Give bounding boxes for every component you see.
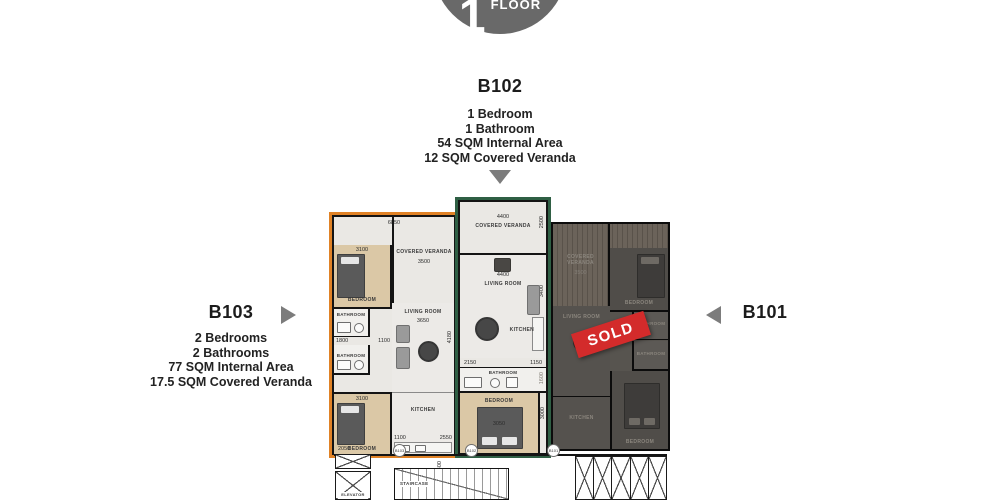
b103-kitchen-dims: 1100 2550 [394, 435, 452, 441]
room-label: BEDROOM [612, 439, 668, 445]
shower-icon [506, 377, 518, 388]
floor-badge-content: 1 FLOOR [433, 0, 567, 34]
page-canvas: 1 FLOOR B102 1 Bedroom 1 Bathroom 54 SQM… [0, 0, 1000, 500]
room-label: BEDROOM [460, 398, 538, 404]
b103-detail-line: 17.5 SQM Covered Veranda [131, 375, 331, 390]
b103-bathroom-2: BATHROOM [334, 345, 370, 375]
dim-label: 4400 [460, 214, 546, 220]
b101-bedroom-1: BEDROOM [610, 248, 668, 312]
bed-icon [477, 407, 523, 449]
pergola-hatched-area [575, 456, 667, 500]
hatch-cell [612, 457, 630, 499]
b103-detail-line: 2 Bathrooms [131, 346, 331, 361]
dim-label: 4180 [447, 331, 453, 343]
bed-icon [337, 403, 365, 445]
bathtub-icon [337, 360, 351, 370]
pillow-icon [502, 437, 517, 445]
room-label: KITCHEN [392, 407, 454, 413]
b103-detail-line: 2 Bedrooms [131, 331, 331, 346]
b102-bathroom: BATHROOM 1600 [460, 367, 546, 393]
b102-title: B102 [380, 76, 620, 97]
dim-label: 3100 [334, 247, 390, 253]
hatch-cell [594, 457, 612, 499]
floor-plan: 6850 COVERED VERANDA 3500 2150 3100 BEDR… [330, 196, 671, 500]
room-label: BATHROOM [460, 370, 546, 376]
pillow-icon [341, 406, 359, 413]
toilet-icon [354, 360, 364, 370]
b102-callout: B102 1 Bedroom 1 Bathroom 54 SQM Interna… [380, 76, 620, 165]
dim-label: 2550 [440, 435, 452, 441]
dim-label: 1100 [394, 435, 406, 441]
dim-label: 4400 [460, 272, 546, 278]
room-label: LIVING ROOM [392, 309, 454, 315]
room-label: BATHROOM [334, 312, 368, 318]
sofa-icon [396, 347, 410, 369]
b101-bedroom-2: BEDROOM [610, 371, 668, 449]
pillow-icon [644, 418, 655, 425]
sink-icon [490, 378, 500, 388]
b102-detail-line: 54 SQM Internal Area [380, 136, 620, 151]
dim-label: 1800 [336, 338, 348, 344]
door-tag-b101: B101 [547, 444, 560, 457]
plan-unit-b103[interactable]: 6850 COVERED VERANDA 3500 2150 3100 BEDR… [332, 215, 456, 455]
room-label: STAIRCASE [398, 481, 430, 487]
b103-detail-line: 77 SQM Internal Area [131, 360, 331, 375]
dim-label: 3500 [553, 270, 608, 276]
dim-label: 3050 [460, 421, 538, 427]
kitchen-counter-icon [532, 317, 544, 351]
room-label: COVERED VERANDA [553, 254, 608, 266]
bathtub-icon [464, 377, 482, 388]
b103-bathroom-1: BATHROOM [334, 309, 370, 337]
room-label: BEDROOM [610, 300, 668, 306]
dim-label: 2150 [464, 360, 476, 366]
dim-label: 2500 [539, 216, 545, 228]
room-label: BEDROOM [334, 297, 390, 303]
armchair-icon [396, 325, 410, 343]
b103-title: B103 [131, 302, 331, 323]
door-tag-b103: B103 [393, 444, 406, 457]
pillow-icon [482, 437, 497, 445]
door-tag-label: B101 [549, 448, 558, 453]
door-tag-b102: B102 [465, 444, 478, 457]
dim-label: 3650 [392, 318, 454, 324]
b102-detail-line: 1 Bathroom [380, 122, 620, 137]
b102-details: 1 Bedroom 1 Bathroom 54 SQM Internal Are… [380, 107, 620, 165]
armchair-icon [494, 258, 511, 272]
room-label: COVERED VERANDA [460, 223, 546, 229]
plan-unit-b101[interactable]: COVERED VERANDA 3500 BEDROOM LIVING ROOM… [551, 222, 670, 451]
b101-covered-veranda: COVERED VERANDA 3500 [553, 224, 610, 306]
b102-detail-line: 1 Bedroom [380, 107, 620, 122]
floor-badge: 1 FLOOR [433, 0, 567, 34]
b101-pointer-arrow-icon[interactable] [706, 306, 721, 324]
bed-icon [337, 254, 365, 298]
dim-label: 3100 [334, 396, 390, 402]
pillow-icon [641, 257, 659, 264]
b103-pointer-arrow-icon[interactable] [281, 306, 296, 324]
floor-label: FLOOR [491, 0, 542, 12]
room-label: BATHROOM [334, 353, 368, 359]
b103-bedroom-1: 3100 BEDROOM [334, 245, 392, 309]
dining-table-icon [418, 341, 439, 362]
hatch-cell [631, 457, 649, 499]
b102-covered-veranda: 4400 COVERED VERANDA 2500 [460, 202, 546, 255]
b102-detail-line: 12 SQM Covered Veranda [380, 151, 620, 166]
hatch-cell [649, 457, 666, 499]
hatch-cell [576, 457, 594, 499]
dining-table-icon [475, 317, 499, 341]
bed-icon [624, 383, 660, 429]
room-label: LIVING ROOM [553, 314, 610, 320]
floor-number: 1 [459, 0, 486, 37]
b103-covered-veranda: COVERED VERANDA 3500 [392, 217, 454, 303]
dim-label: 3500 [394, 259, 454, 265]
b103-living-room: LIVING ROOM 3650 4180 [392, 303, 454, 392]
sofa-icon [527, 285, 540, 315]
b103-bathroom-dims: 1800 1100 [336, 338, 390, 344]
b103-details: 2 Bedrooms 2 Bathrooms 77 SQM Internal A… [131, 331, 331, 389]
room-label: KITCHEN [553, 415, 610, 421]
pillow-icon [341, 257, 359, 264]
staircase: STAIRCASE [394, 468, 509, 500]
shower-icon [337, 322, 351, 333]
room-label: ELEVATOR [336, 492, 370, 498]
dim-label: 2050 [338, 446, 350, 452]
room-label: BATHROOM [634, 351, 668, 357]
b101-bathroom-2: BATHROOM [632, 341, 668, 371]
b102-living-room: 4400 LIVING ROOM 3400 KITCHEN [460, 255, 546, 358]
door-tag-label: B103 [395, 448, 404, 453]
bed-icon [637, 254, 665, 298]
b101-title: B101 [730, 302, 800, 323]
b102-pointer-arrow-icon[interactable] [489, 170, 511, 184]
utility-shaft [335, 454, 371, 469]
dim-label: 3000 [540, 407, 546, 419]
b101-kitchen: KITCHEN [553, 396, 610, 449]
pillow-icon [629, 418, 640, 425]
plan-unit-b102[interactable]: 4400 COVERED VERANDA 2500 4400 LIVING RO… [458, 200, 548, 455]
dim-label: 1150 [530, 360, 542, 366]
stove-icon [415, 445, 426, 452]
sink-icon [354, 323, 364, 333]
b102-bathroom-dims: 2150 1150 [464, 360, 542, 366]
dim-label: 1100 [378, 338, 390, 344]
room-label: COVERED VERANDA [394, 249, 454, 255]
dim-label: 1600 [539, 372, 545, 384]
door-tag-label: B102 [467, 448, 476, 453]
elevator: ELEVATOR [335, 471, 371, 500]
room-label: KITCHEN [510, 327, 534, 333]
